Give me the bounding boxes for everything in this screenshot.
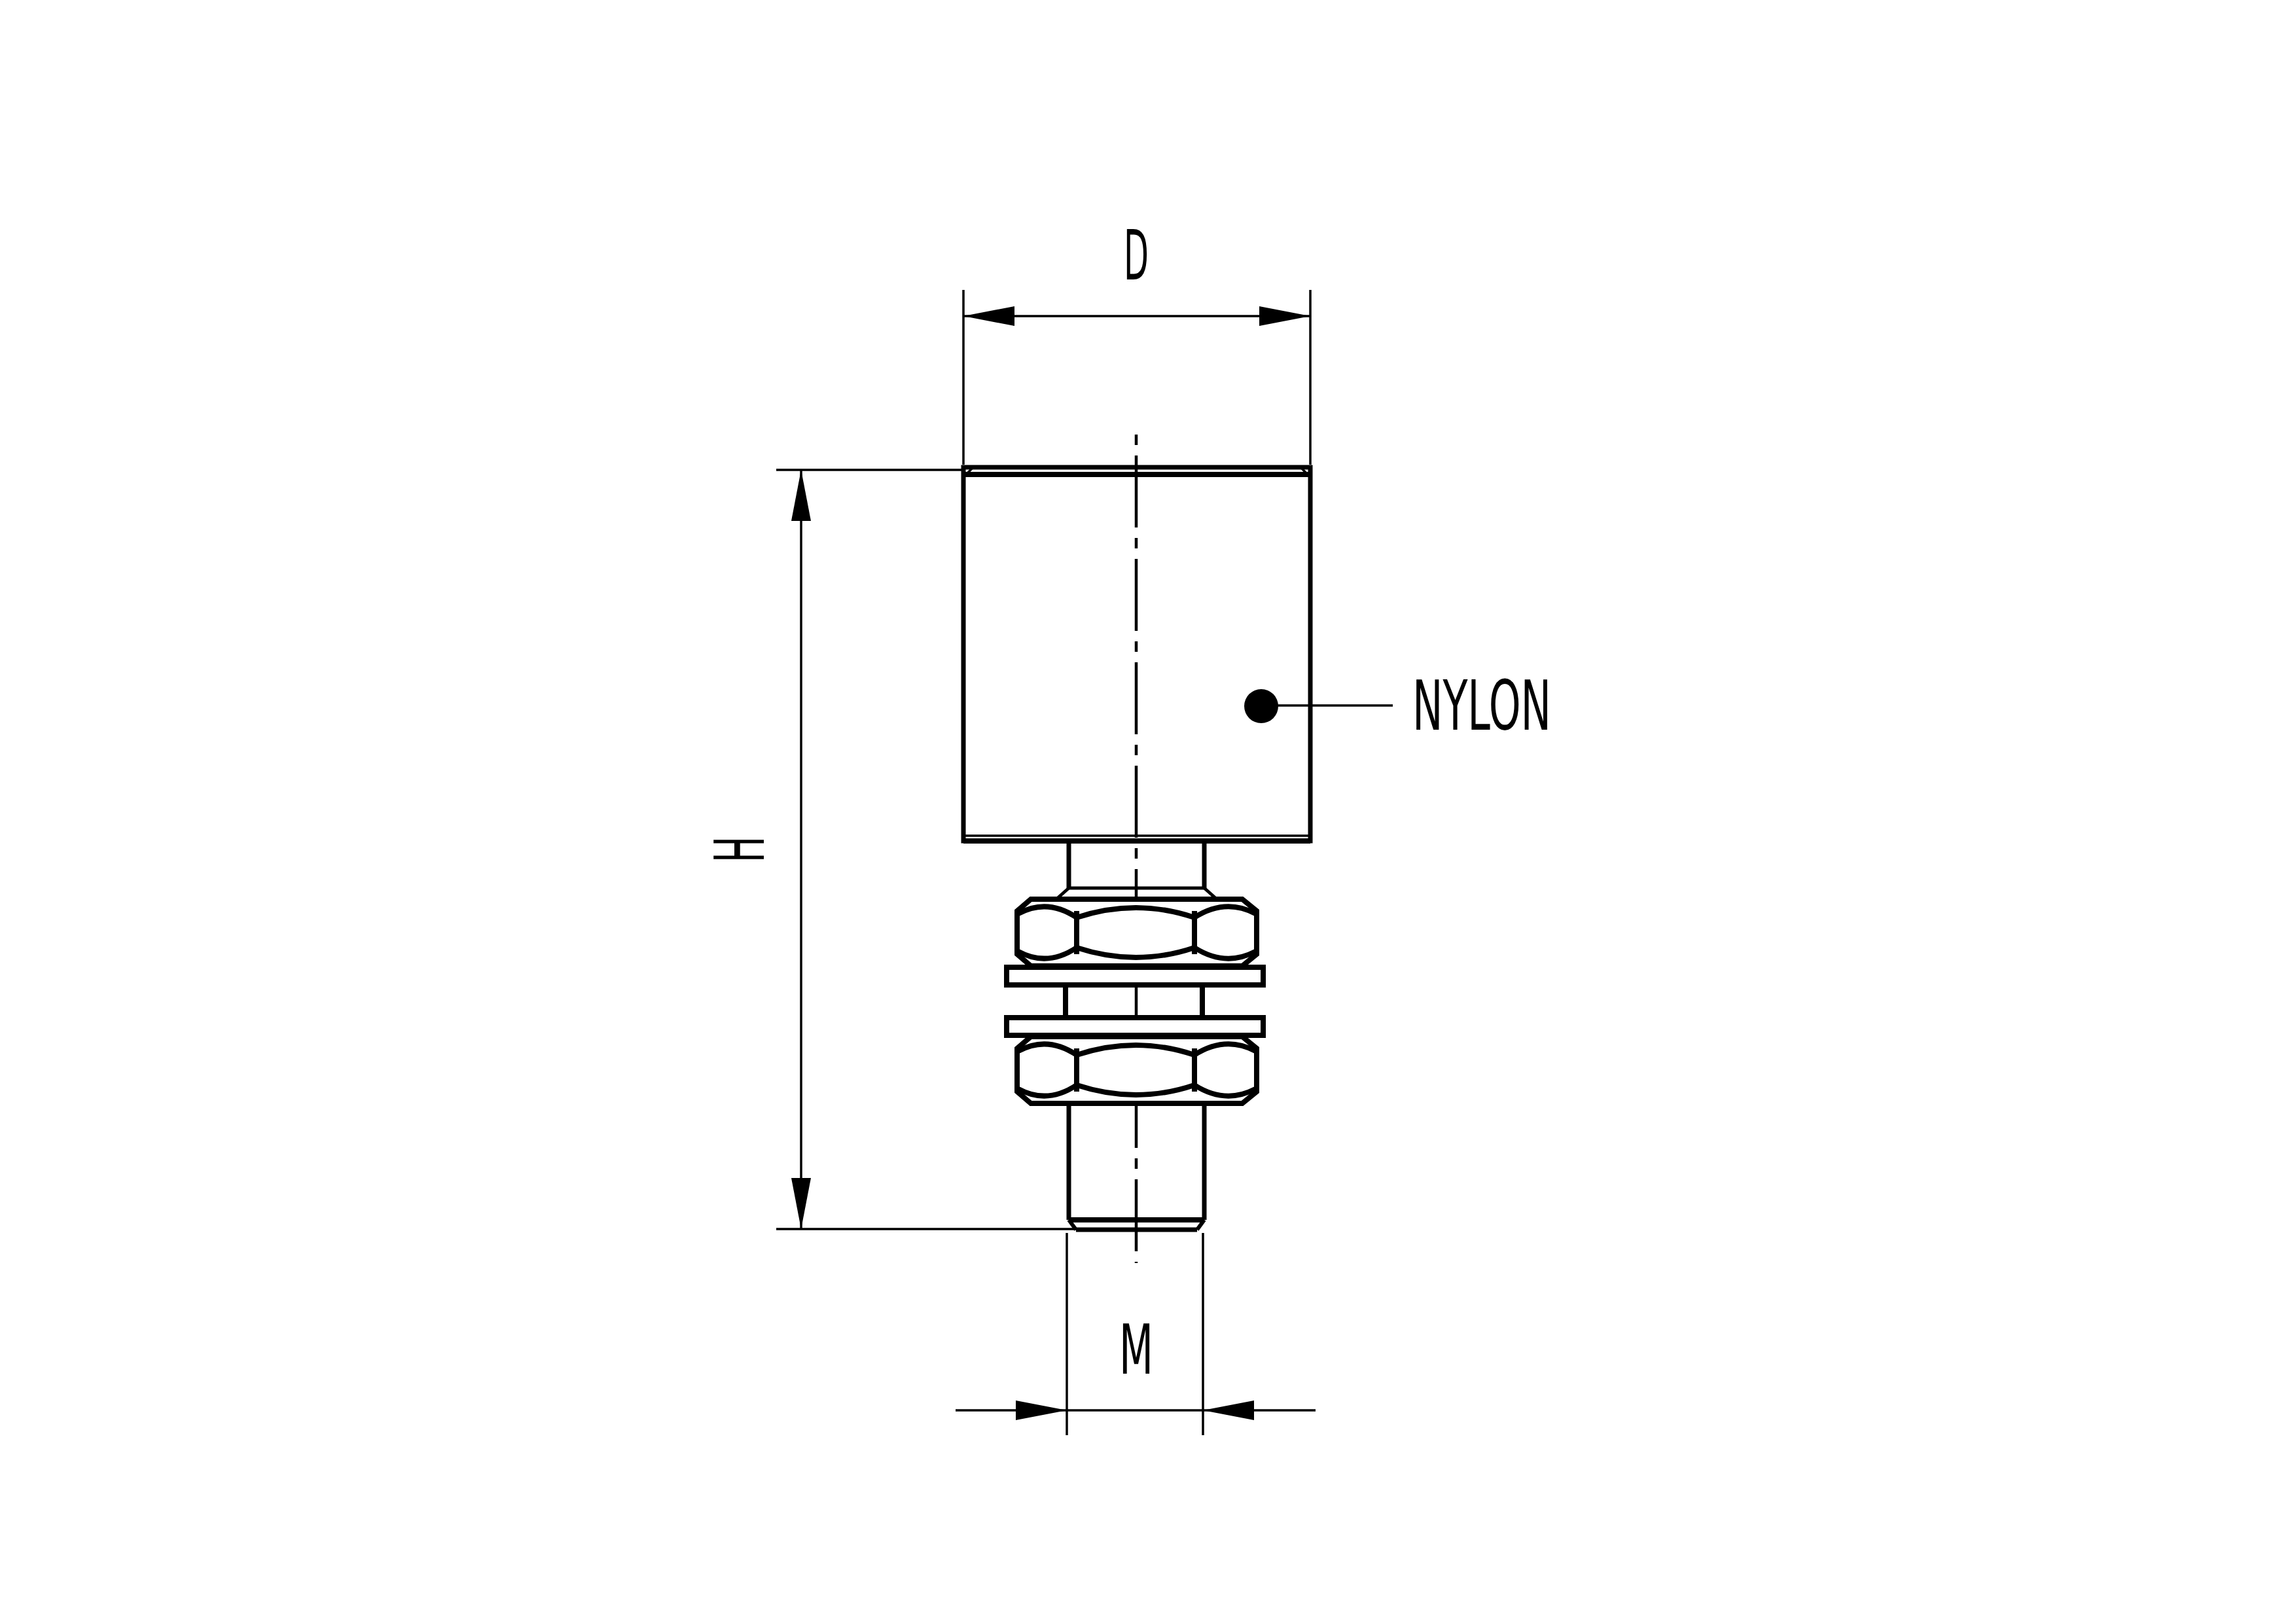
dimension-d: D <box>963 215 1310 465</box>
arrowhead-bottom <box>791 1178 811 1229</box>
arrowhead-right <box>1259 306 1310 326</box>
technical-drawing-page: D H M NYLON <box>0 0 2296 1623</box>
arrowhead-right <box>1203 1400 1254 1420</box>
material-callout: NYLON <box>1244 666 1551 746</box>
hex-nut-lower <box>1017 1037 1257 1103</box>
dimension-m: M <box>956 1233 1316 1435</box>
arrowhead-left <box>1016 1400 1067 1420</box>
dimension-m-label: M <box>1119 1310 1153 1390</box>
hex-nut-upper <box>1017 899 1257 966</box>
arrowhead-top <box>791 470 811 521</box>
arrowhead-left <box>963 306 1014 326</box>
dimension-d-label: D <box>1124 215 1149 296</box>
dimension-h-label: H <box>700 836 780 863</box>
washer-lower <box>1007 1018 1263 1035</box>
washer-upper <box>1007 967 1263 985</box>
spacer-bushing <box>1066 985 1202 1018</box>
material-label: NYLON <box>1412 666 1551 746</box>
nylon-roller-drawing: D H M NYLON <box>0 0 2296 1623</box>
dimension-h: H <box>700 470 1076 1229</box>
